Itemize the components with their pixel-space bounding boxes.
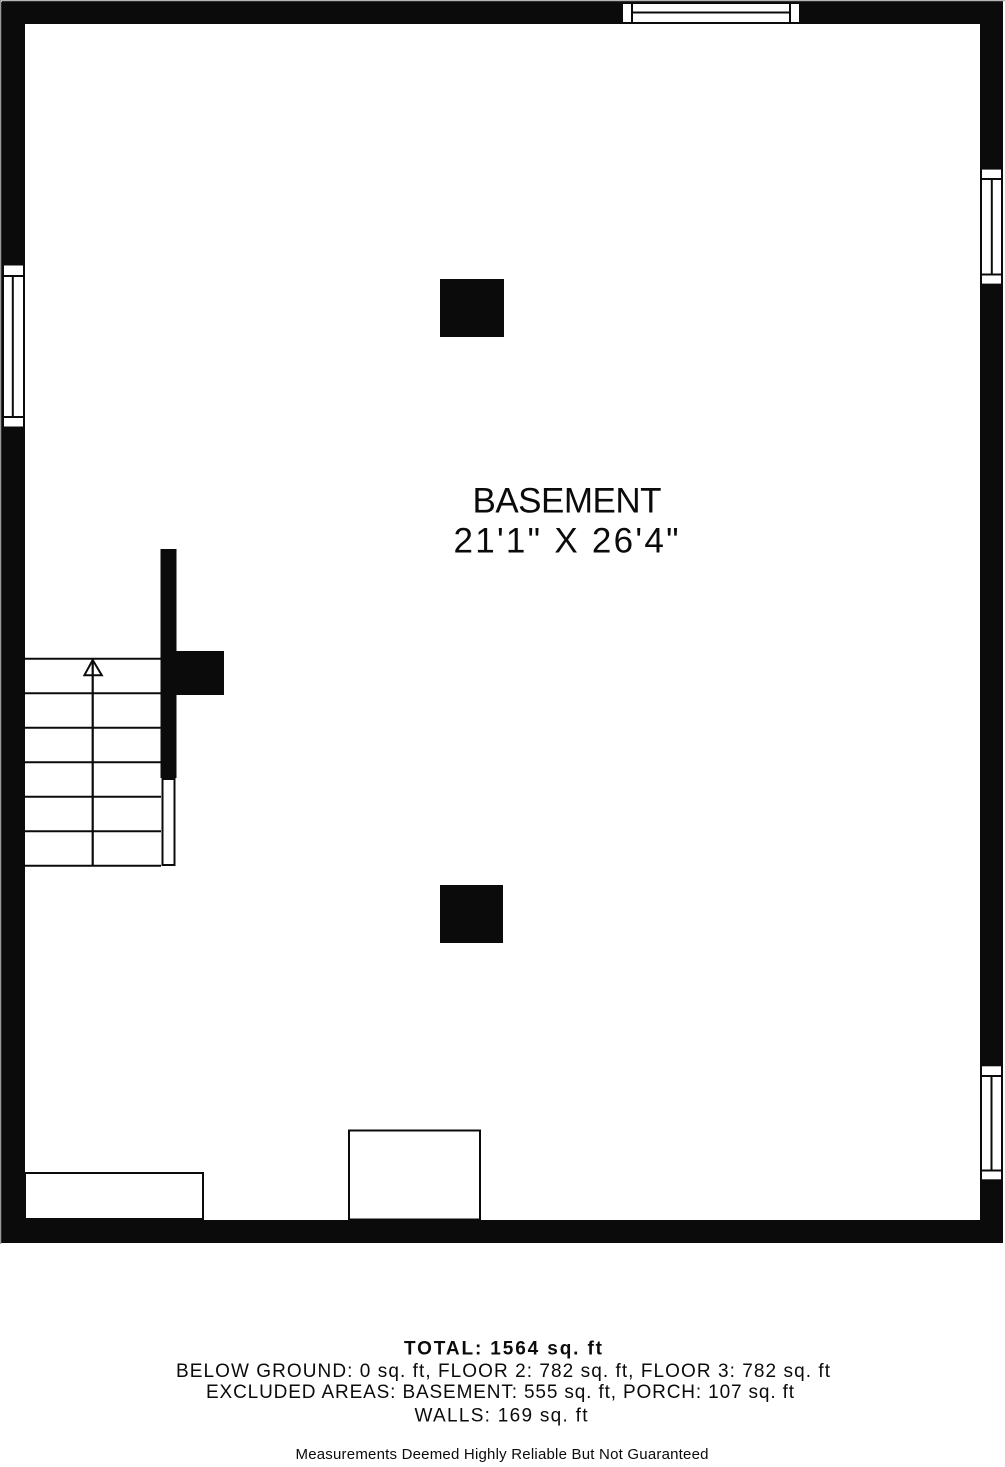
svg-text:WALLS: 169 sq. ft: WALLS: 169 sq. ft [415,1405,589,1426]
svg-text:Measurements Deemed Highly Rel: Measurements Deemed Highly Reliable But … [296,1446,709,1463]
svg-text:TOTAL: 1564 sq. ft: TOTAL: 1564 sq. ft [404,1338,603,1359]
svg-text:BASEMENT: BASEMENT [473,482,662,521]
svg-text:EXCLUDED AREAS: BASEMENT: 555: EXCLUDED AREAS: BASEMENT: 555 sq. ft, PO… [206,1382,795,1403]
svg-text:BELOW GROUND: 0 sq. ft, FLOOR: BELOW GROUND: 0 sq. ft, FLOOR 2: 782 sq.… [176,1361,831,1382]
svg-text:21'1" X 26'4": 21'1" X 26'4" [454,522,679,561]
